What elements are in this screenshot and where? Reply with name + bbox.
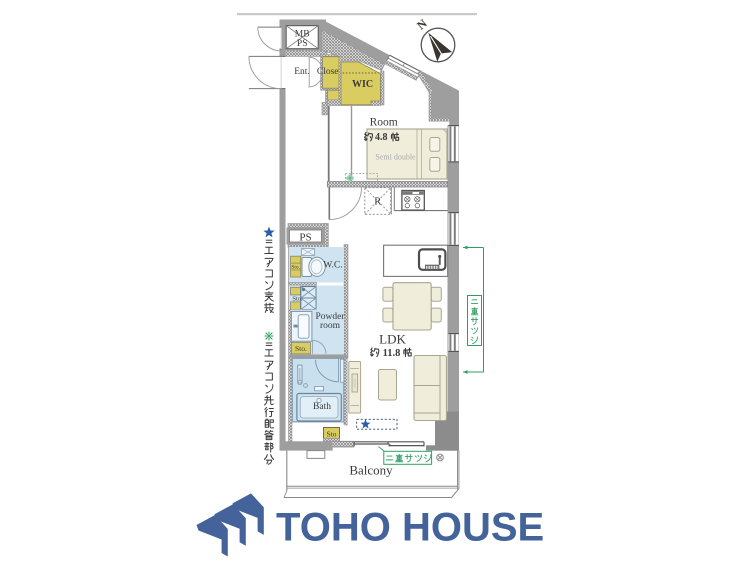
svg-text:Room: Room	[370, 117, 398, 129]
svg-text:Sto: Sto	[326, 430, 336, 439]
svg-text:TOHO HOUSE: TOHO HOUSE	[276, 506, 544, 550]
svg-text:PS: PS	[299, 232, 311, 244]
svg-text:Ent.: Ent.	[294, 67, 310, 77]
svg-text:MB: MB	[295, 30, 310, 40]
svg-text:PS: PS	[297, 39, 308, 49]
svg-text:WIC: WIC	[352, 79, 373, 90]
svg-text:Sto.: Sto.	[292, 296, 303, 303]
svg-text:Sto.: Sto.	[295, 344, 307, 353]
svg-text:Sto.: Sto.	[291, 264, 300, 270]
svg-text:11.8: 11.8	[383, 348, 401, 359]
svg-text:Bath: Bath	[313, 402, 331, 412]
svg-text:W.C.: W.C.	[323, 261, 342, 271]
svg-text:Closet: Closet	[317, 67, 342, 77]
svg-text:R: R	[374, 197, 381, 208]
svg-text:LDK: LDK	[379, 332, 406, 347]
svg-text:room: room	[320, 321, 341, 331]
svg-text:4.8: 4.8	[375, 132, 388, 143]
svg-text:Semi double: Semi double	[375, 153, 416, 162]
